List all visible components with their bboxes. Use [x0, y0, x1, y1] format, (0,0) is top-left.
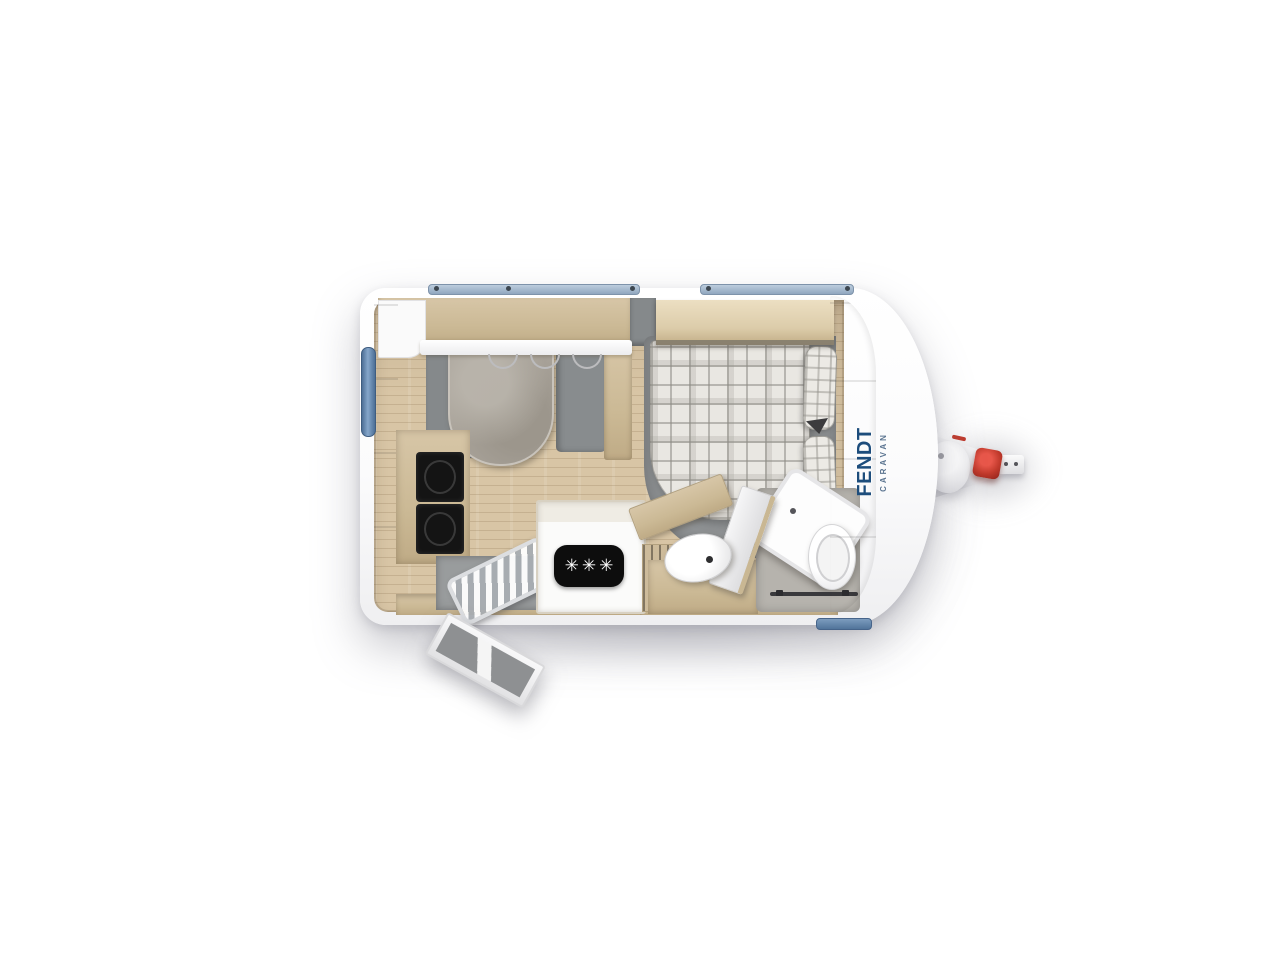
- window-hinge: [506, 286, 511, 291]
- bed-shelf: [656, 300, 834, 345]
- coupling-bolt: [1004, 462, 1008, 466]
- caravan-floorplan: ✳✳✳ FENDT CARAVAN: [0, 0, 1280, 960]
- roof-window-left: [428, 284, 640, 295]
- window-hinge: [845, 286, 850, 291]
- coupling-bolt: [1014, 462, 1018, 466]
- seat-side-panel: [604, 342, 632, 460]
- shower-drain: [790, 508, 796, 514]
- dinette-counter-edge: [420, 340, 632, 355]
- window-front: [816, 618, 872, 630]
- window-hinge: [706, 286, 711, 291]
- brand-logo: FENDT CARAVAN: [819, 427, 923, 497]
- kitchen-cooker: [416, 452, 464, 502]
- jockey-wheel-bolt: [938, 453, 944, 459]
- coupling-handle: [972, 447, 1004, 480]
- freezer-symbol-plate: ✳✳✳: [554, 545, 624, 587]
- window-hinge: [630, 286, 635, 291]
- track-roller: [776, 590, 783, 596]
- basin-faucet: [706, 556, 713, 563]
- brand-sub: CARAVAN: [879, 432, 888, 492]
- kitchen-oven: [416, 504, 464, 554]
- window-hinge: [434, 286, 439, 291]
- rear-cabinets: [374, 300, 398, 600]
- roof-window-right: [700, 284, 854, 295]
- brand-name: FENDT: [854, 427, 877, 496]
- window-rear: [361, 347, 376, 437]
